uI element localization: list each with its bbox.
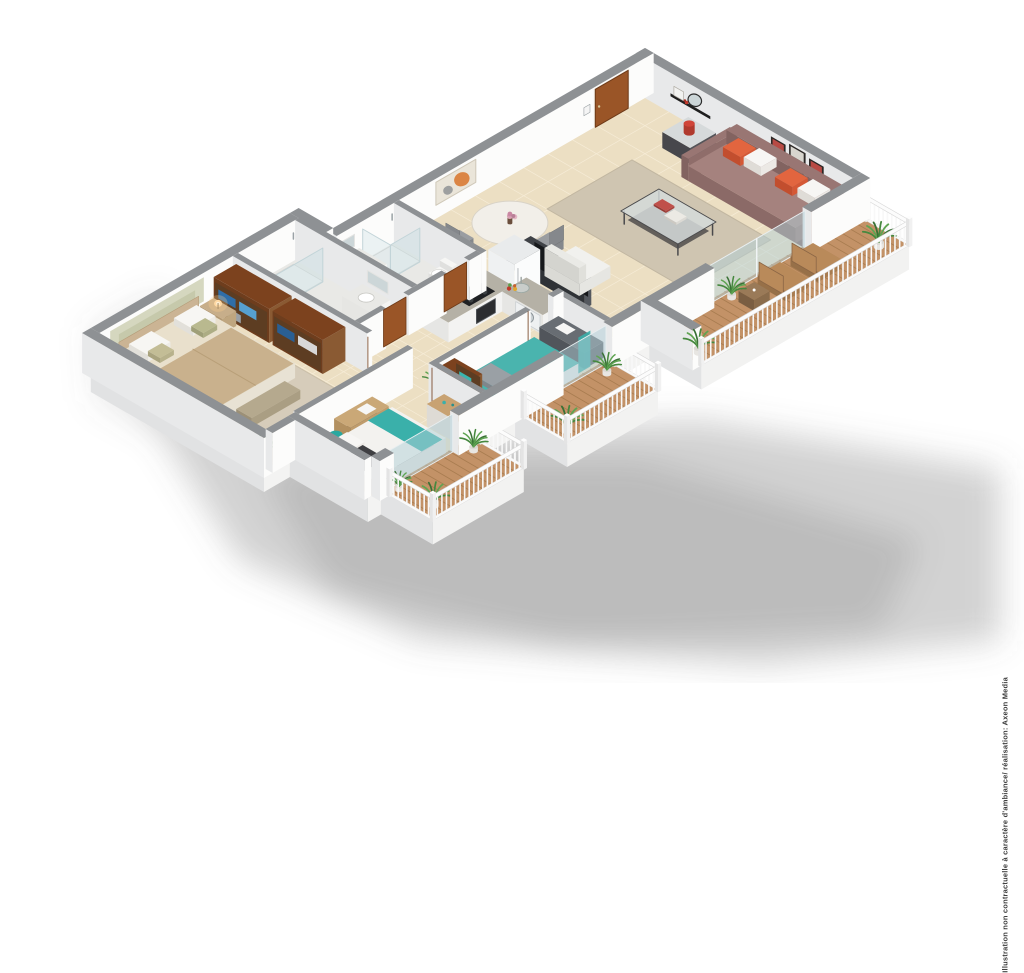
caption: Illustration non contractuelle à caractè… <box>1001 677 1010 973</box>
bedside-lamp-1 <box>208 295 227 312</box>
basin-2 <box>358 293 374 302</box>
floorplan-scene: Illustration non contractuelle à caractè… <box>0 0 1024 683</box>
floorplan-render <box>0 0 1024 683</box>
table-lamp-red <box>684 120 695 135</box>
entry-door-knob <box>598 105 600 107</box>
balcony-table-cup <box>753 289 756 292</box>
